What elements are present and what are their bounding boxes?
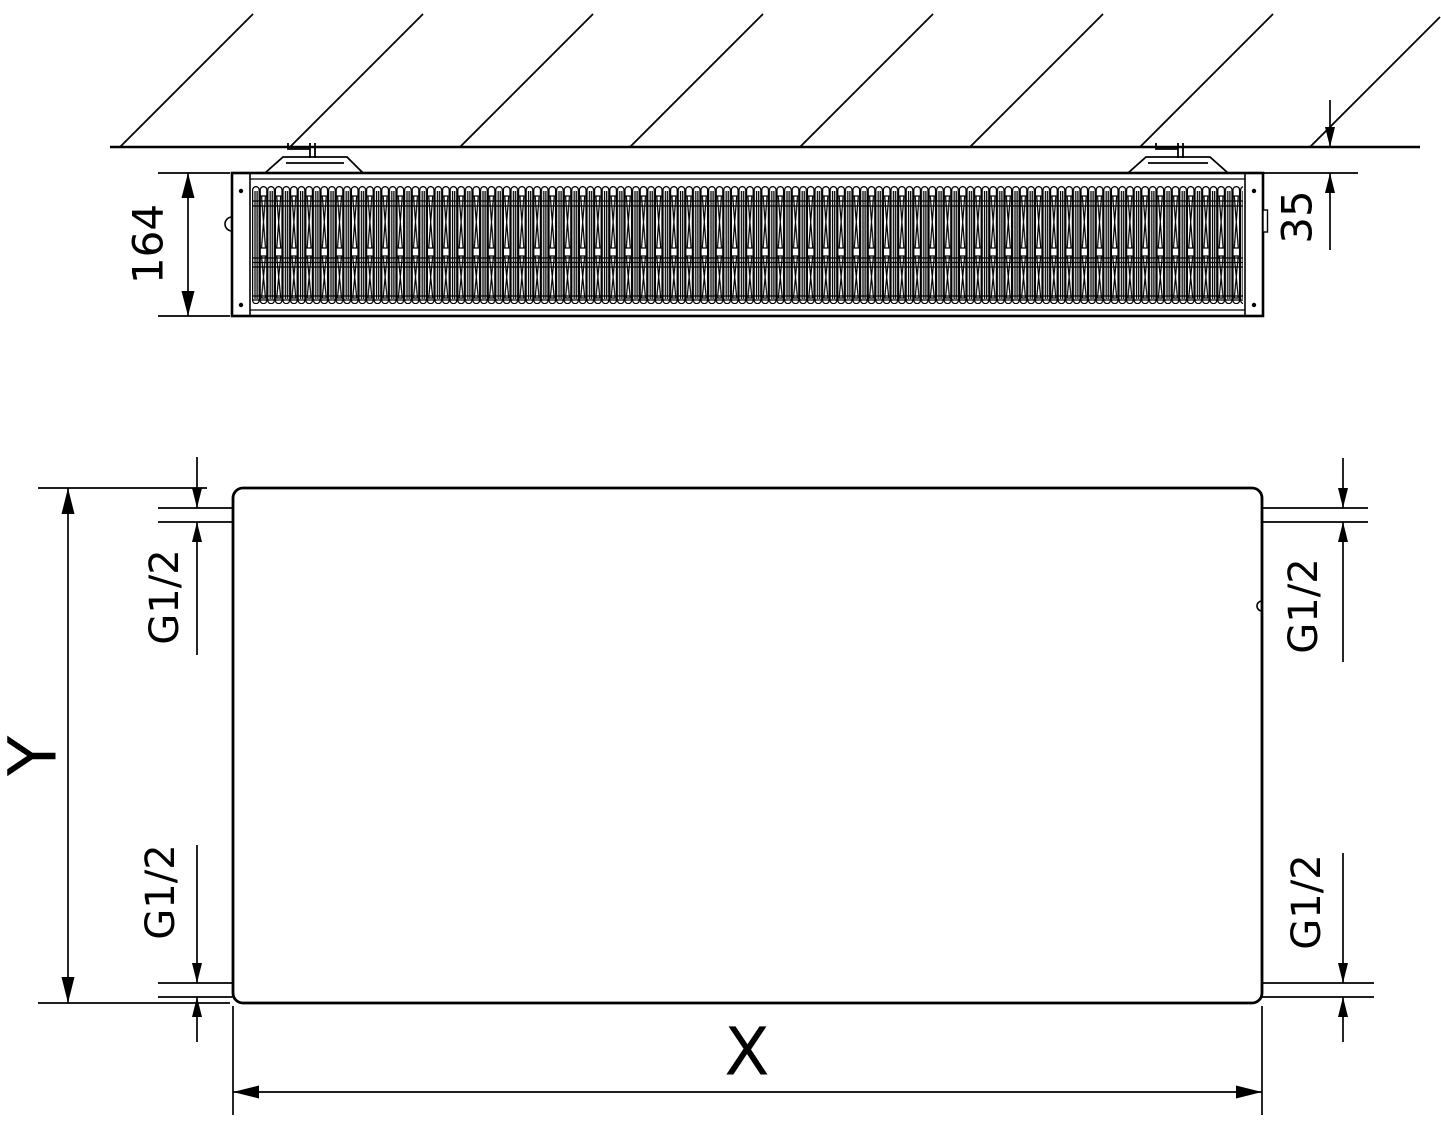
radiator-drawing: 164 35 Y X G1/2 <box>0 0 1441 1131</box>
arrowhead-down <box>1325 127 1335 147</box>
dim-connection-top-right: G1/2 <box>1262 458 1368 662</box>
arrowhead-down <box>192 488 202 508</box>
height-dimension-label: Y <box>0 735 72 777</box>
arrowhead-up <box>1338 522 1348 542</box>
connection-thread-label: G1/2 <box>1281 558 1327 653</box>
arrowhead-up <box>62 488 75 514</box>
radiator-front-view <box>233 488 1262 1003</box>
front-panel <box>233 488 1262 1003</box>
arrowhead-up <box>1325 173 1335 193</box>
convector-fins <box>252 186 1243 304</box>
dim-width: X <box>233 1006 1262 1115</box>
drawing-canvas: 164 35 Y X G1/2 <box>0 0 1441 1131</box>
screw-dot <box>1252 189 1256 193</box>
arrowhead-up <box>192 997 202 1017</box>
dim-connection-bottom-right: G1/2 <box>1262 853 1374 1042</box>
dim-connection-bottom-left: G1/2 <box>138 844 233 1042</box>
wall-gap-dimension-label: 35 <box>1273 190 1322 243</box>
dim-depth: 164 <box>124 173 231 316</box>
width-dimension-label: X <box>724 1014 769 1091</box>
screw-dot <box>239 303 243 307</box>
screw-dot <box>1252 303 1256 307</box>
connection-thread-label: G1/2 <box>138 844 184 939</box>
arrowhead-down <box>62 977 75 1003</box>
radiator-side-view <box>225 143 1267 316</box>
dim-wall-gap: 35 <box>1263 100 1358 250</box>
arrowhead-up <box>192 522 202 542</box>
arrowhead-down <box>192 963 202 983</box>
arrowhead-up <box>182 173 195 198</box>
screw-dot <box>239 189 243 193</box>
wall-section <box>110 14 1440 147</box>
depth-dimension-label: 164 <box>124 204 173 284</box>
arrowhead-up <box>1338 997 1348 1017</box>
arrowhead-left <box>233 1086 259 1099</box>
arrowhead-down <box>182 291 195 316</box>
connection-thread-label: G1/2 <box>142 549 188 644</box>
arrowhead-down <box>1338 488 1348 508</box>
connection-thread-label: G1/2 <box>1284 854 1330 949</box>
side-plug-right <box>1263 210 1268 232</box>
arrowhead-right <box>1236 1086 1262 1099</box>
wall-hatching <box>120 14 1440 147</box>
dim-height: Y <box>0 488 230 1003</box>
arrowhead-down <box>1338 963 1348 983</box>
dim-connection-top-left: G1/2 <box>142 457 233 655</box>
